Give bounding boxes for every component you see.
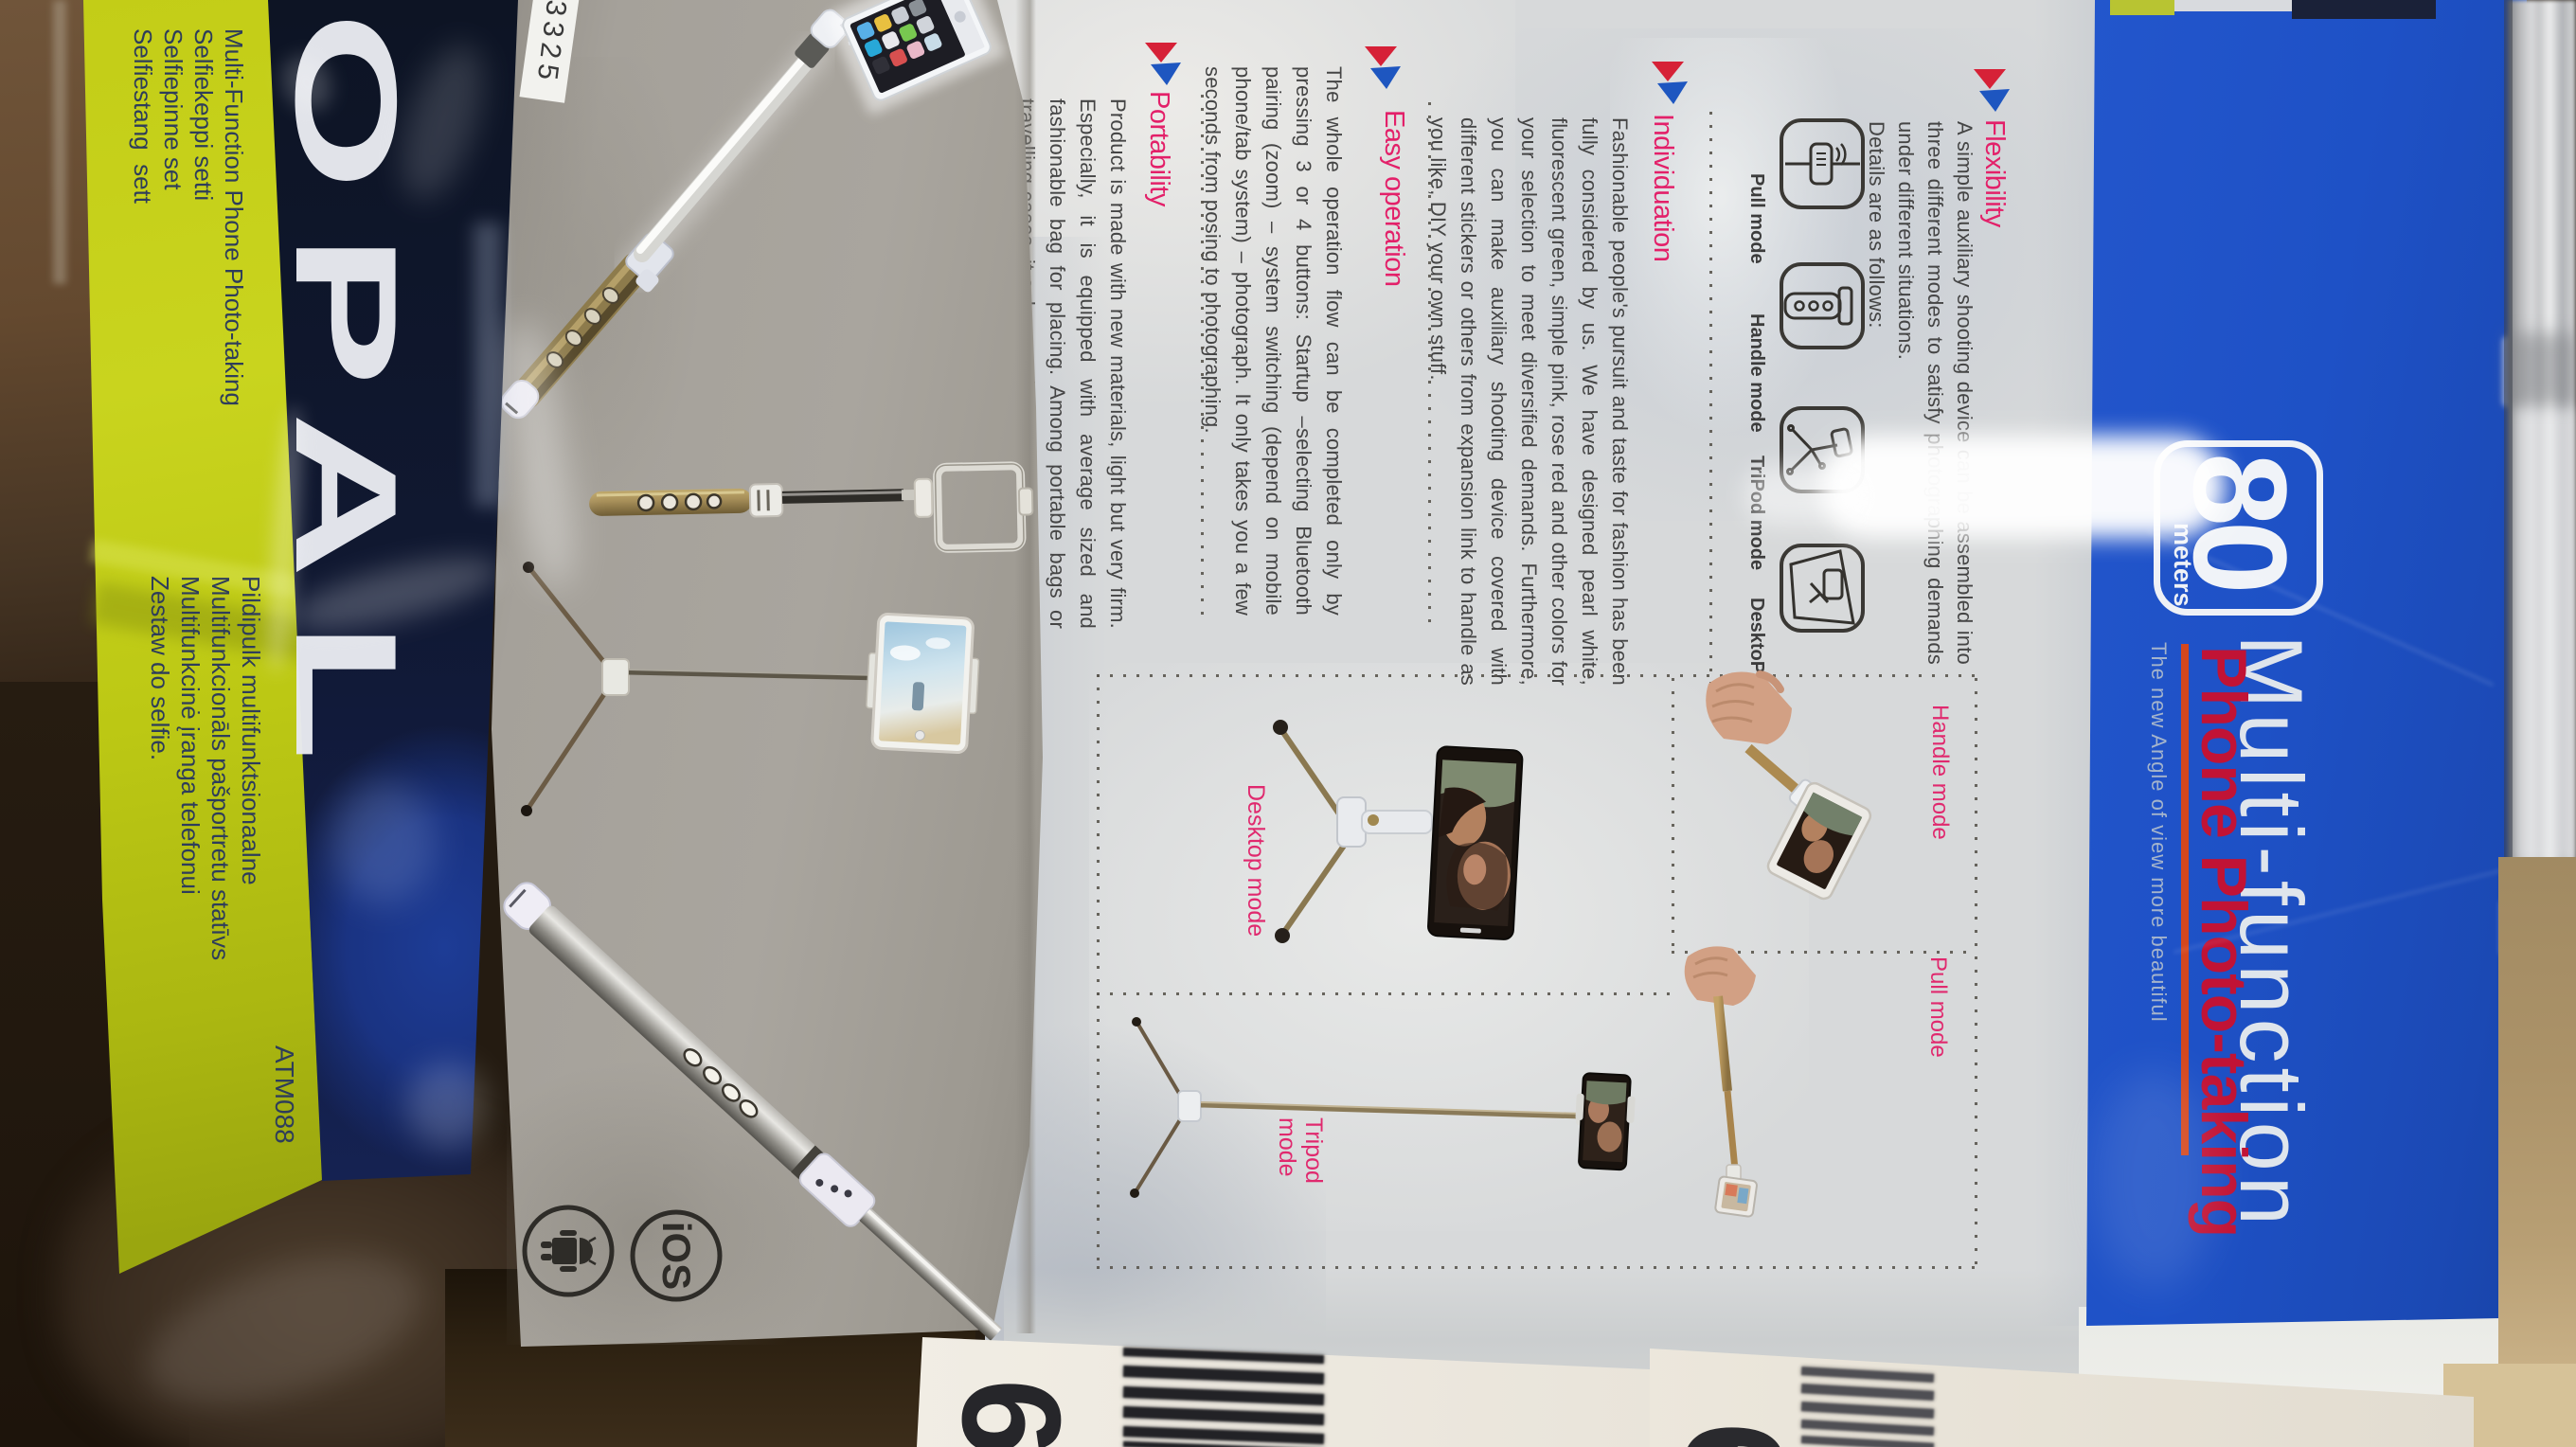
svg-text:iOS: iOS bbox=[654, 1222, 699, 1290]
